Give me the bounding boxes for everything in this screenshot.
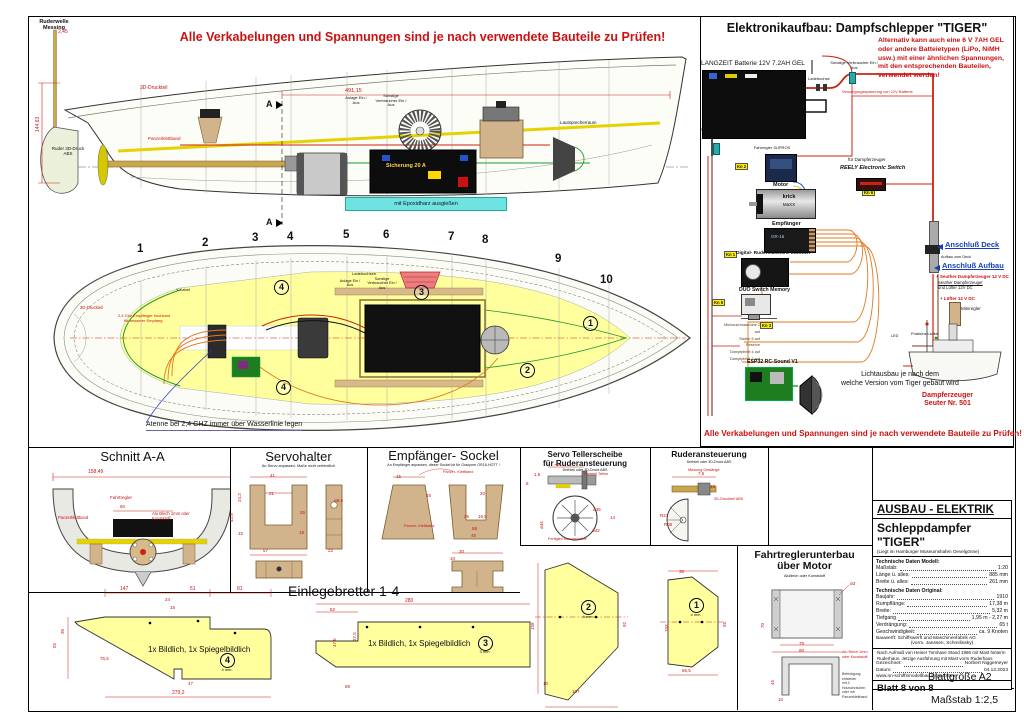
data-label: Rumpflänge: — [876, 601, 905, 608]
dim-2-45: 2,45 — [58, 30, 68, 36]
data-value: 885 mm — [989, 572, 1008, 579]
alt-note-line: Alternativ kann auch eine 6 V 7AH GEL — [878, 37, 1014, 46]
motor-krick: krick MaXX — [756, 189, 816, 219]
anschluss-deck-label: Anschluß Deck — [945, 241, 999, 250]
ladebuchse-jack — [816, 84, 820, 91]
anschluss-aufbau-label: Anschluß Aufbau — [942, 262, 1004, 271]
data-label: Maßstab: — [876, 565, 898, 572]
board4-dim: 15 — [170, 605, 175, 610]
receiver-pins — [809, 229, 815, 252]
sockel-dim: 45 — [471, 533, 476, 538]
ruderansteuerung-drawing — [650, 447, 768, 545]
board2-dim: 92 — [622, 622, 627, 627]
data-value: 1,95 m - 2,27 m — [972, 615, 1008, 622]
fahrtreglerunterbau-dim: 80 — [799, 648, 804, 653]
sockel-klett-label-1: Panzer- Klettband — [443, 470, 473, 474]
teller-teflon-label: Drehteil Teflon — [584, 472, 608, 476]
fahrtreglerunterbau-dim: 78 — [799, 641, 804, 646]
reely-switch — [856, 178, 886, 191]
frame-number-10: 10 — [600, 274, 613, 287]
anlage-switch — [713, 143, 720, 155]
alt-note-line: oder andere Batteietypen (LiPo, NiMH — [878, 46, 1014, 55]
title-block: AUSBAU - ELEKTRIK Schleppdampfer "TIGER"… — [872, 500, 1012, 690]
board3-dim: 27,5 — [352, 632, 357, 641]
data-value: 5,32 m — [992, 608, 1008, 615]
sockel-klett-label-2: Panzer- Klettband — [404, 524, 434, 528]
servohalter-dim: 57 — [263, 548, 268, 553]
dim-144-63: 144,63 — [36, 117, 42, 132]
servo-horn — [745, 264, 761, 280]
rudder-blade — [41, 127, 78, 193]
fahrtreglerunterbau-befestigung-note: Befestigung entweder mit 4 Holzschrauben… — [842, 672, 872, 699]
board4-dim: 147 — [120, 587, 128, 593]
servohalter-dim: 25 — [300, 510, 305, 515]
ruderansteuerung-dim: R35 — [664, 522, 672, 527]
anlage-switch-label-profile: Anlage Ein / Aus — [342, 96, 370, 105]
ship-subtitle: (Liegt im Hamburger Museumshafen Oevelgö… — [873, 549, 1011, 557]
motor-label: Motor — [773, 182, 788, 188]
battery-sticker — [745, 74, 757, 78]
lautsprecherraum-label: Lautsprecherraum — [560, 120, 597, 125]
duo-switch-module — [741, 294, 771, 315]
motor-profile — [297, 153, 347, 195]
deck-circle-4b: 4 — [276, 380, 291, 395]
data-value: 261 mm — [989, 579, 1008, 586]
versorgung-label: Versorgungsspannung von 12V Batterie — [842, 90, 913, 95]
data-row: Breite ü. alles:261 mm — [876, 579, 1008, 586]
deck-circle-3: 3 — [414, 285, 429, 300]
board4-mirror-label: 1x Bildlich, 1x Spiegelbildlich — [148, 645, 250, 654]
verbraucher-switch-label-profile: Sonstige Verbraucher Ein / Aus — [374, 94, 408, 108]
ship-name: Schleppdampfer "TIGER" — [876, 519, 1008, 549]
board3-dim: 280 — [405, 599, 413, 605]
aufbau-zum-deck-label: Aufbau zum Deck — [941, 255, 971, 259]
board4-dim: 51 — [190, 587, 196, 593]
ruderansteuerung-dim: 7,5 — [698, 471, 704, 476]
battery-label: LANGZEIT Batterie 12V 7.2AH GEL — [701, 60, 805, 67]
fahrtreglerunterbau-dim: ø3 — [850, 581, 855, 586]
board4-dim: 47 — [188, 681, 193, 686]
epoxid-note: mit Epoxidharz ausgießen — [345, 197, 507, 211]
deck-circle-1: 1 — [583, 316, 598, 331]
servohalter-dim: 21 — [269, 491, 274, 496]
empfaenger-receiver: GR-16 — [764, 228, 816, 253]
frame-number-6: 6 — [383, 229, 389, 242]
board1-dim: 103 — [664, 624, 669, 632]
board3-thickness: 3 mm — [476, 650, 493, 655]
board4-dim: 24 — [165, 597, 170, 602]
board1-dim: 66,5 — [682, 668, 691, 673]
led-label: LED — [891, 334, 898, 338]
section-marker-a-top: A — [266, 99, 273, 109]
ruderansteuerung-dim: R23 — [660, 513, 668, 518]
empfaenger-hochkant-note-2: für besserer Empfang — [124, 319, 162, 324]
servohalter-dim: 15 — [238, 531, 243, 536]
teller-dim: ø44 — [539, 521, 544, 529]
data-label: Breite ü. alles: — [876, 579, 909, 586]
servo-pedestal — [480, 120, 523, 158]
data-row: Verdrängung:65 t — [876, 622, 1008, 629]
seuther-label-3: und Lüfter 12V DC — [938, 286, 973, 291]
reely-label-1: für Dampferzeuger — [848, 157, 886, 162]
data-label: Länge ü. alles: — [876, 572, 910, 579]
board3-dim: 62 — [330, 607, 335, 612]
section-arrow-top-icon — [276, 101, 283, 109]
section-marker-a-bottom: A — [266, 217, 273, 227]
data-label: Verdrängung: — [876, 622, 907, 629]
data-value: 17,38 m — [989, 601, 1008, 608]
board2-dim: 10 — [543, 681, 548, 686]
ruder-label: Ruder 3D-Druck ABS — [48, 146, 88, 156]
ladebuchse-label: Ladebuchse — [808, 77, 830, 82]
ruderansteuerung-druckteil-label: 3D-Druckteil ABS — [714, 497, 746, 501]
deck-plan-drawing — [30, 230, 700, 445]
sicherung-label: Sicherung 20 A — [386, 163, 426, 169]
schnitt-panzer-label: Panzerklettband — [58, 516, 88, 521]
anschluss-aufbau-arrow-icon — [934, 265, 940, 271]
druckteil-profile-label: 3D-Druckteil — [140, 86, 168, 92]
motor-deck — [298, 318, 328, 358]
data-label: Breite: — [876, 608, 891, 615]
frame-number-4: 4 — [287, 231, 293, 244]
board3-dim: 69 — [345, 684, 350, 689]
verbraucher-label-deck: Sonstige Verbraucher Ein / Aus — [366, 277, 398, 290]
board1-dim: 55 — [722, 622, 727, 627]
anlage-label-deck: Anlage Ein / Aus — [338, 279, 362, 288]
teller-fertig-label: Fertigteil Servoscheibe — [548, 537, 587, 541]
motor-type: MaXX — [767, 202, 811, 207]
propeller — [98, 145, 108, 185]
board3-mirror-label: 1x Bildlich, 1x Spiegelbildlich — [368, 639, 470, 648]
schnitt-fahrtregler-label: Fahrtregler — [110, 495, 132, 500]
sockel-dim: 16,5 — [478, 514, 487, 519]
frame-number-2: 2 — [202, 237, 208, 250]
board1-number: 1 — [689, 598, 704, 613]
data-value: 1:20 — [998, 565, 1008, 572]
servohalter-dim: 42,5 — [229, 513, 234, 522]
lichtausbau-note-2: welche Version vom Tiger gebaut wird — [795, 380, 1005, 388]
data-row: Baujahr:1910 — [876, 594, 1008, 601]
positions-lichter-label: Positions Lichter — [911, 332, 939, 336]
deck-circle-2: 2 — [520, 363, 535, 378]
servohalter-dim: ø8,5 — [334, 498, 343, 503]
divider-v-5 — [768, 447, 769, 545]
board4-dim: 76,5 — [100, 656, 109, 661]
motor-shaft — [749, 202, 757, 206]
teller-dim: ø36 — [593, 507, 601, 512]
teller-dim: ø42 — [592, 528, 600, 533]
board3-dim: 47,5 — [332, 638, 337, 647]
frame-number-7: 7 — [448, 231, 454, 244]
antenne-note: Atenne bei 2,4 GHZ immer über Wasserlini… — [146, 421, 302, 431]
frame-number-3: 3 — [252, 232, 258, 245]
einlegebretter-drawing — [30, 555, 740, 715]
servohalter-dim: 24,3 — [237, 493, 242, 502]
rudermaschine-label: Digital- Rudermaschine MG996R — [736, 251, 810, 257]
schnitt-alu-label: Alu Blech 1mm oder Kunststoff — [152, 512, 207, 522]
servohalter-dim: 18 — [299, 530, 304, 535]
motor-endcap — [757, 194, 763, 214]
board4-dim: 55 — [52, 643, 57, 648]
frame-number-1: 1 — [137, 243, 143, 256]
ladebuchse-jack — [823, 84, 827, 91]
receiver-display: GR-16 — [771, 234, 784, 239]
alt-note-line: mit den entsprechenden Bauteilen, — [878, 63, 1014, 72]
data-row: Tiefgang1,95 m - 2,27 m — [876, 615, 1008, 622]
verbraucher-switch-label: Sonstige Verbraucher Ein / Aus — [830, 61, 878, 70]
channel-tag: Kn 3 — [760, 322, 773, 329]
wire-label: Minirauchmaschine 2 auf — [718, 322, 760, 336]
channel-tag: Kn 2 — [735, 163, 748, 170]
panzerklettband-label: Panzerklettband — [148, 136, 181, 141]
drawing-sheet: Ruderwelle Messing 2,45 144,63 Alle Verk… — [0, 0, 1024, 724]
fahrregler-esc — [765, 154, 797, 182]
sockel-dim: 30 — [459, 549, 464, 554]
esp32-board — [745, 367, 793, 401]
warning-panel-bottom: Alle Verkabelungen und Spannungen sind j… — [704, 429, 1010, 438]
teller-drawing — [520, 447, 650, 545]
channel-tag: Kn 5 — [712, 299, 725, 306]
servo-profile — [483, 107, 519, 121]
rudermaschine-servo — [741, 258, 789, 287]
dampferzeuger-label-2: Seuter Nr. 501 — [905, 400, 990, 408]
wire-label: Starter 5 auf — [718, 336, 760, 343]
befestigung-line: Panzerklettband — [842, 695, 872, 700]
frame-number-8: 8 — [482, 234, 488, 247]
empfaenger-label: Empfänger — [772, 221, 801, 227]
befestigung-line: Befestigung entweder — [842, 672, 872, 681]
anschluss-deck-arrow-icon — [937, 244, 943, 250]
wire-label: Dampfpfeife 4 auf — [718, 349, 760, 356]
teller-dim: ~34 — [554, 462, 562, 467]
data-row: Maßstab:1:20 — [876, 565, 1008, 572]
linkage-servo-arm — [748, 314, 760, 320]
fahrtreglerunterbau-dim: 45 — [770, 680, 775, 685]
alt-battery-note: Alternativ kann auch eine 6 V 7AH GEL od… — [878, 37, 1014, 81]
sockel-dim: 45 — [426, 493, 431, 498]
sheet-scale-label: Maßstab 1:2,5 — [931, 694, 998, 706]
servohalter-dim: 22 — [328, 548, 333, 553]
servohalter-dim: 41 — [270, 473, 275, 478]
luefter-dc-label: + Lüfter 12 V DC — [940, 296, 975, 301]
board1-dim: 38 — [679, 569, 684, 574]
anlage-switch-label: Anlage Ein / Aus — [700, 128, 730, 133]
reely-label-2: REELY Electronic Switch — [840, 165, 905, 171]
fahrtreglerunterbau-dim: 10 — [778, 697, 783, 702]
board2-dim: 107 — [572, 689, 580, 694]
section-arrow-bottom-icon — [276, 219, 283, 227]
title-block-header: AUSBAU - ELEKTRIK — [873, 503, 1011, 519]
sockel-dim: 15 — [396, 474, 401, 479]
fahrtreglerunterbau-dim: 70 — [760, 623, 765, 628]
data-row: Breite:5,32 m — [876, 608, 1008, 615]
alt-note-line: usw.) mit einer ähnlichen Spannungen, — [878, 55, 1014, 64]
teller-dim: 14 — [610, 515, 615, 520]
fahrtreglerunterbau-alu-label-1: Alu Blech 1mm — [842, 650, 868, 654]
frame-number-9: 9 — [555, 253, 561, 266]
data-label: Tiefgang — [876, 615, 896, 622]
sockel-dim: 20 — [480, 491, 485, 496]
board4-thickness: 4 mm — [218, 668, 235, 673]
ruderansteuerung-dim: 15 — [710, 484, 715, 489]
battery-terminal — [725, 74, 737, 78]
board1-thickness: 4 mm — [687, 613, 704, 618]
sockel-dim: 25 — [464, 514, 469, 519]
deck-circle-4: 4 — [274, 280, 289, 295]
data-label: Baujahr: — [876, 594, 895, 601]
sheet-size-label: Blattgröße A2 — [928, 671, 992, 683]
board4-dim: 30 — [60, 629, 65, 634]
electronics-title: Elektronikaufbau: Dampfschlepper "TIGER" — [700, 21, 1014, 35]
dim-491-15: 491,15 — [345, 88, 362, 94]
battery-terminal — [709, 73, 717, 79]
aufmass-note: Nach Aufmaß von Heiner Tomhave Stand 198… — [873, 648, 1011, 661]
data-row: Rumpflänge:17,38 m — [876, 601, 1008, 608]
schnitt-dim-60: 60 — [120, 504, 125, 509]
frame-number-5: 5 — [343, 229, 349, 242]
lichtausbau-note-1: Lichtausbau je nach dem — [795, 371, 1005, 379]
data-value: 65 t — [999, 622, 1008, 629]
data-value: ca. 9 Knoten — [979, 629, 1008, 636]
board4-dim: 81 — [237, 587, 243, 593]
board2-thickness: 4 mm — [579, 615, 596, 620]
esp32-label: ESP32 RC-Sound V1 — [747, 360, 798, 366]
bauwerft-line-2: (vorm. Janssen, Schmilinsky) — [876, 641, 1008, 646]
dampferzeuger-label-1: Dampferzeuger — [905, 392, 990, 400]
warning-top: Alle Verkabelungen und Spannungen sind j… — [150, 30, 695, 44]
battery-deck — [365, 305, 480, 372]
board4-dim: 279,2 — [172, 691, 185, 697]
board2-dim: 158 — [530, 622, 535, 630]
board4-number: 4 — [220, 653, 235, 668]
fahrtreglerunterbau-alu-label-2: oder Kunststoff — [842, 655, 867, 659]
fahrregler-label: Fahrregler SUPROS — [748, 146, 796, 151]
miniregler-label: Miniregler — [961, 306, 981, 311]
verbraucher-switch — [849, 72, 856, 84]
board2-number: 2 — [581, 600, 596, 615]
data-value: 1910 — [996, 594, 1008, 601]
sockel-dim: 58 — [472, 526, 477, 531]
schnitt-dim-158: 158,49 — [88, 470, 103, 476]
teller-dim: 1,5 — [534, 472, 540, 477]
wire-label: Reserve — [718, 342, 760, 349]
befestigung-line: mit 4 Holzschrauben — [842, 681, 872, 690]
wire-function-labels: Minirauchmaschine 2 auf Starter 5 auf Re… — [718, 322, 760, 363]
seuther-dc-label: + Seuther Dampferzeuger 12 V DC — [936, 274, 1009, 279]
data-row: Länge ü. alles:885 mm — [876, 572, 1008, 579]
druckteil-deck-label: 3D-Druckteil — [80, 306, 103, 311]
teller-dim: 8 — [526, 481, 529, 486]
ladebuchsen-label-deck: Ladebuchsen — [352, 272, 376, 277]
motor-brand: krick — [767, 194, 811, 200]
alt-note-line: verwendet werden! — [878, 72, 1014, 81]
y-kabel-label: Y-Kabel — [176, 288, 190, 293]
